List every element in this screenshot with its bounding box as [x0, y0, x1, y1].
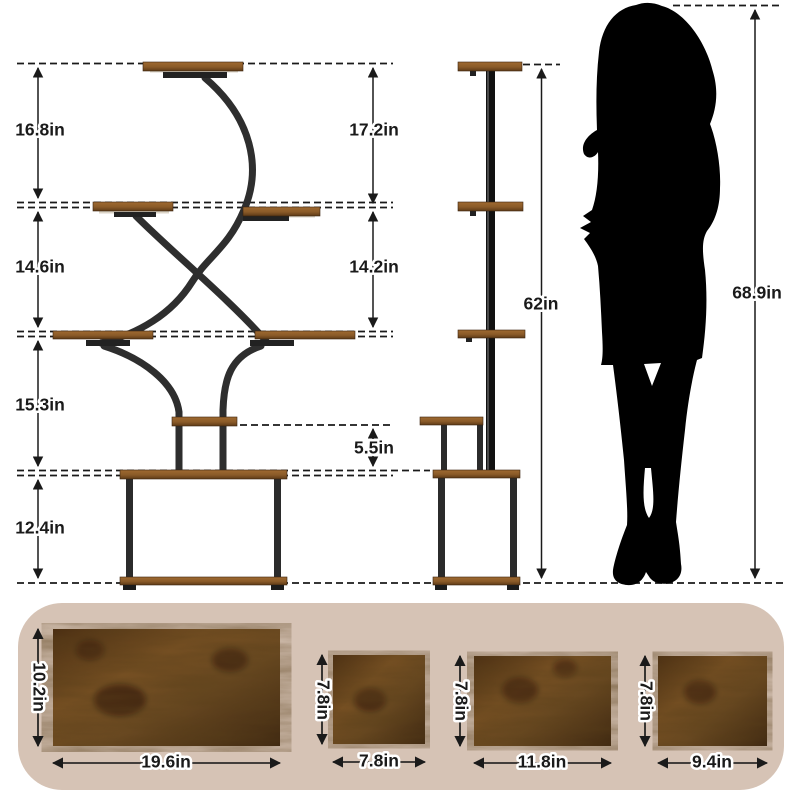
wood-grain-overlay: [658, 656, 767, 746]
wood-shelf-top: [143, 62, 243, 71]
plant-stand-side-view: [420, 62, 525, 590]
wood-grain-overlay: [53, 629, 280, 746]
dimension-label: 15.3in: [15, 395, 65, 415]
shelf-bracket: [163, 72, 227, 78]
dimension-label: 17.2in: [349, 120, 399, 140]
board-11-8x7-8: [474, 656, 611, 746]
metal-pole-highlight: [487, 70, 489, 472]
stand-foot: [435, 585, 447, 590]
diagram-svg: 16.8in 14.6in 15.3in 12.4in 17.2in 14.2i…: [0, 0, 800, 800]
side-shelf-3: [458, 330, 525, 338]
dimension-label: 12.4in: [15, 518, 65, 538]
pole-tab: [470, 71, 476, 76]
stand-foot: [271, 585, 284, 590]
shelf-bracket: [114, 212, 156, 217]
dimension-front-left-2: 14.6in: [15, 212, 65, 327]
small-shelf-frame-leg: [477, 425, 483, 471]
dimension-side-total-height: 62in: [523, 69, 558, 578]
dimension-label: 7.8in: [313, 680, 333, 720]
dimension-label: 10.2in: [29, 662, 49, 712]
dimension-front-left-3: 15.3in: [15, 341, 65, 466]
metal-tube-inner-right: [223, 346, 261, 473]
dimension-front-left-1: 16.8in: [15, 68, 65, 198]
woman-silhouette: [580, 3, 720, 585]
wood-shelf-base-bottom: [120, 577, 287, 585]
side-base-top: [433, 470, 520, 478]
dimension-label: 7.8in: [636, 681, 656, 721]
small-shelf-frame-leg: [441, 425, 447, 471]
dimension-label: 5.5in: [354, 438, 394, 458]
dimension-front-left-4: 12.4in: [15, 480, 65, 578]
shelf-bracket: [250, 340, 294, 346]
dimension-label: 14.6in: [15, 257, 65, 277]
product-dimension-diagram: 16.8in 14.6in 15.3in 12.4in 17.2in 14.2i…: [0, 0, 800, 800]
wood-shelf-tier3-left: [53, 331, 153, 339]
board-9-4x7-8: [658, 656, 767, 746]
side-shelf-2: [458, 202, 523, 211]
stand-foot: [507, 585, 519, 590]
pole-tab: [470, 211, 476, 216]
wood-shelf-tier2-right: [243, 207, 320, 216]
dimension-label: 9.4in: [692, 752, 732, 772]
stand-foot: [123, 585, 136, 590]
board-7-8x7-8: [333, 655, 425, 744]
base-leg-left: [126, 479, 133, 577]
side-base-leg: [438, 478, 445, 577]
plant-stand-front-view: [53, 62, 355, 590]
dimension-label: 16.8in: [15, 120, 65, 140]
shelf-boards-panel: 10.2in 19.6in 7.8in 7.8in 7.8in 11.8in 7…: [18, 603, 784, 790]
wood-grain-overlay: [333, 655, 425, 744]
wood-grain-overlay: [474, 656, 611, 746]
dimension-front-right-3: 5.5in: [354, 429, 394, 466]
board-19-6x10-2: [53, 629, 280, 746]
dimension-label: 19.6in: [141, 752, 191, 772]
base-leg-right: [274, 479, 281, 577]
dimension-label: 11.8in: [518, 752, 567, 772]
dimension-front-right-2: 14.2in: [349, 212, 399, 327]
metal-tube-inner-left: [104, 346, 179, 473]
dimension-label: 62in: [523, 294, 558, 314]
wood-shelf-small: [172, 417, 237, 426]
pole-tab: [466, 338, 472, 342]
wood-shelf-tier3-right: [255, 331, 355, 339]
wood-shelf-base-top: [120, 470, 287, 479]
side-base-bottom: [433, 577, 520, 585]
dimension-front-right-1: 17.2in: [349, 68, 399, 203]
shelf-bracket: [86, 340, 130, 346]
shelf-bracket: [243, 216, 289, 221]
side-shelf-top: [458, 62, 522, 71]
dimension-label: 7.8in: [451, 681, 471, 721]
dimension-person-height: 68.9in: [732, 10, 782, 578]
dimension-label: 68.9in: [732, 283, 782, 303]
side-shelf-small: [420, 417, 483, 425]
dimension-label: 14.2in: [349, 257, 399, 277]
dimension-label: 7.8in: [359, 751, 399, 771]
side-base-leg: [510, 478, 517, 577]
wood-shelf-tier2-left: [93, 202, 173, 211]
